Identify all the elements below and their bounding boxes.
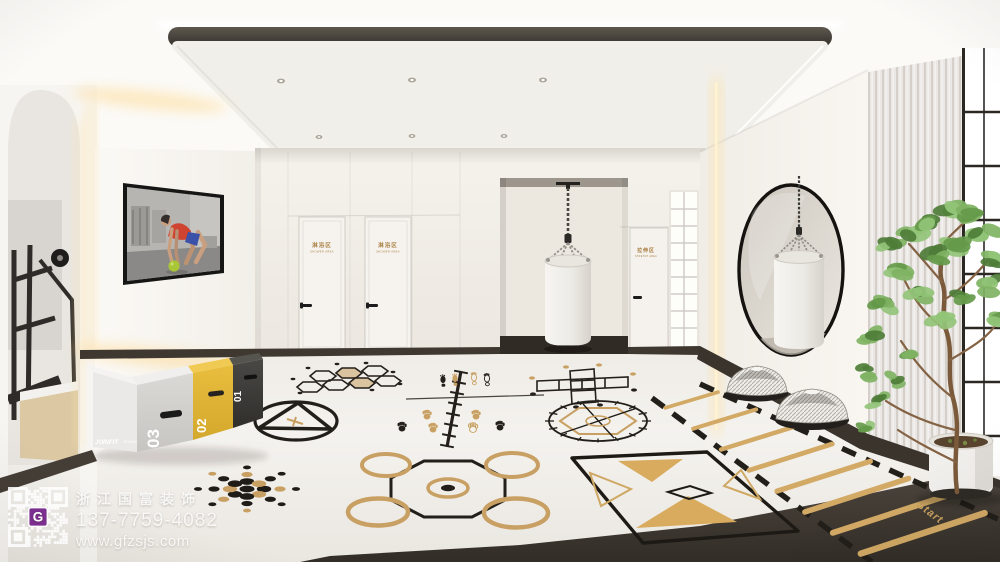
watermark: G 浙江国富装饰 137-7759-4082 www.gfzsjs.com <box>8 486 218 549</box>
watermark-website: www.gfzsjs.com <box>76 534 218 549</box>
scene-canvas: 淋浴区 SHOWER AREA 淋浴区 SHOWER AREA <box>0 0 1000 562</box>
gym-interior-rendering: 淋浴区 SHOWER AREA 淋浴区 SHOWER AREA <box>0 0 1000 562</box>
watermark-company: 浙江国富装饰 <box>76 492 218 506</box>
qr-code: G <box>8 486 68 548</box>
qr-logo-letter: G <box>33 510 43 525</box>
watermark-phone: 137-7759-4082 <box>76 511 218 530</box>
vignette <box>0 0 1000 562</box>
